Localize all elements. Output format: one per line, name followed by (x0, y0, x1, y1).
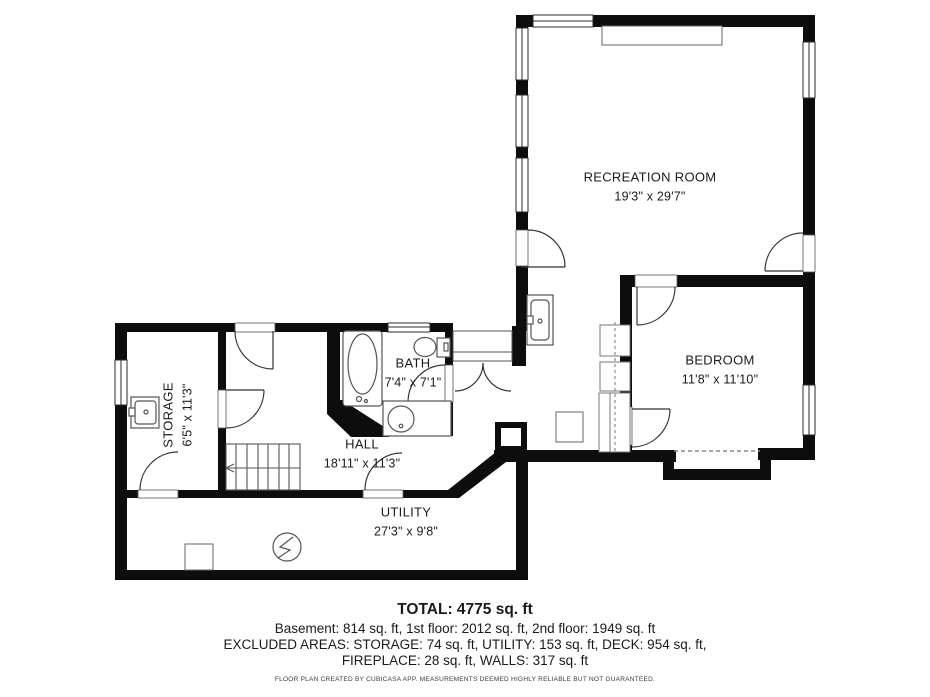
fireplace (602, 26, 722, 45)
floor-plan-drawing (0, 0, 930, 697)
room-dims: 19'3" x 29'7" (584, 187, 717, 205)
room-dims: 11'8" x 11'10" (682, 370, 758, 388)
corridor-cabinet (556, 412, 583, 442)
room-dims: 18'11" x 11'3" (324, 454, 400, 472)
room-name: STORAGE (160, 382, 179, 447)
laundry-sink-icon (527, 295, 553, 345)
water-heater-icon (273, 533, 301, 561)
bedroom-wardrobes (599, 322, 630, 452)
bath-sink-icon (383, 401, 451, 436)
room-name: UTILITY (374, 504, 438, 523)
excluded-areas-line2: FIREPLACE: 28 sq. ft, WALLS: 317 sq. ft (0, 653, 930, 668)
area-summary: TOTAL: 4775 sq. ft Basement: 814 sq. ft,… (0, 601, 930, 683)
bathtub-icon (343, 331, 382, 406)
walls (115, 15, 815, 580)
floor-plan-page: RECREATION ROOM 19'3" x 29'7" BEDROOM 11… (0, 0, 930, 697)
room-name: HALL (324, 436, 400, 455)
closet-counter (453, 331, 512, 361)
room-label-bedroom: BEDROOM 11'8" x 11'10" (682, 352, 758, 389)
room-label-recreation: RECREATION ROOM 19'3" x 29'7" (584, 169, 717, 206)
room-name: BEDROOM (682, 352, 758, 371)
utility-unit (185, 544, 213, 570)
room-label-hall: HALL 18'11" x 11'3" (324, 436, 400, 473)
total-area: TOTAL: 4775 sq. ft (0, 601, 930, 619)
room-dims: 27'3" x 9'8" (374, 522, 438, 540)
storage-sink-icon (129, 397, 159, 428)
room-label-bath: BATH 7'4" x 7'1" (385, 355, 442, 392)
disclaimer-text: FLOOR PLAN CREATED BY CUBICASA APP. MEAS… (0, 676, 930, 683)
room-label-utility: UTILITY 27'3" x 9'8" (374, 504, 438, 541)
excluded-areas-line1: EXCLUDED AREAS: STORAGE: 74 sq. ft, UTIL… (0, 637, 930, 652)
room-dims: 6'5" x 11'3" (178, 382, 196, 447)
staircase (226, 444, 300, 490)
room-name: RECREATION ROOM (584, 169, 717, 188)
room-label-storage: STORAGE 6'5" x 11'3" (160, 382, 197, 447)
room-name: BATH (385, 355, 442, 374)
floor-areas: Basement: 814 sq. ft, 1st floor: 2012 sq… (0, 621, 930, 636)
chase-opening (501, 428, 521, 446)
room-dims: 7'4" x 7'1" (385, 373, 442, 391)
